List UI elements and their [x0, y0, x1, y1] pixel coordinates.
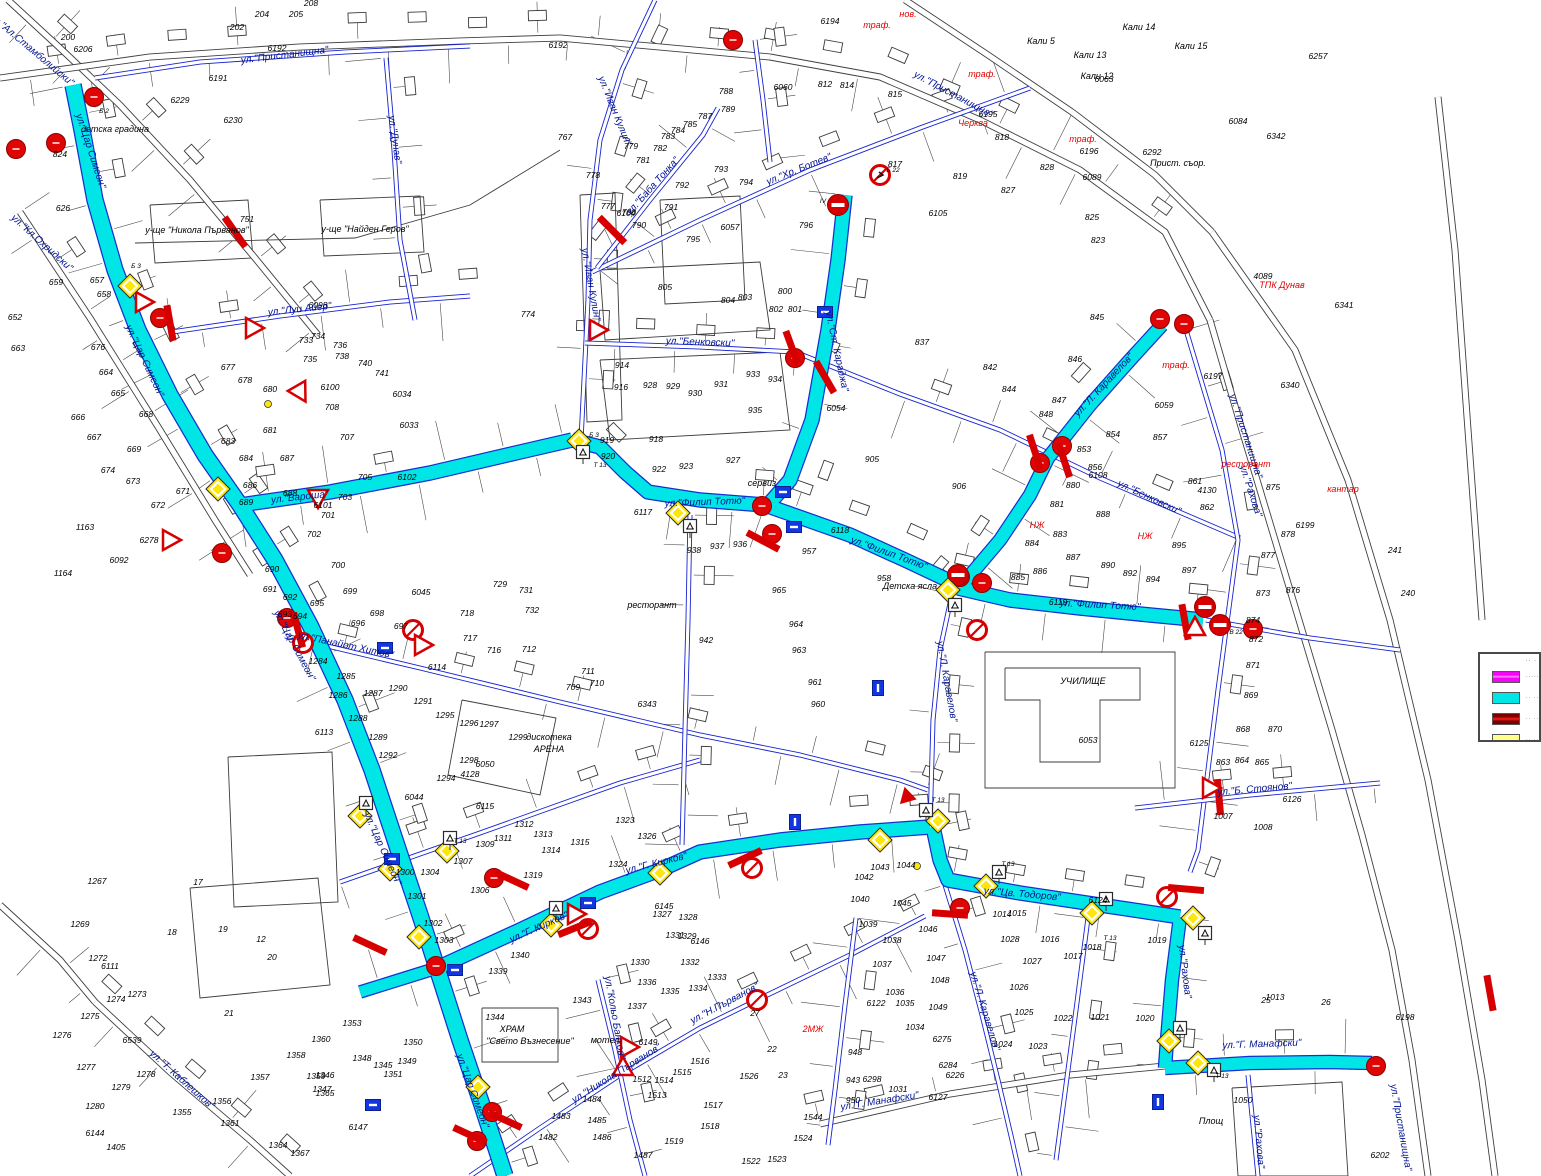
parcel-number: 200	[60, 32, 75, 42]
parcel-number: 1348	[353, 1053, 372, 1063]
parcel-number: 895	[1172, 540, 1186, 550]
parcel-number: 787	[698, 111, 712, 121]
legend-item-main-route-magenta: ·········	[1480, 666, 1539, 687]
parcel-number: 4130	[1198, 485, 1217, 495]
parcel-number: 708	[325, 402, 339, 412]
street-cyan[interactable]	[933, 827, 1180, 917]
parcel-number: 886	[1033, 566, 1047, 576]
micro-label: В 22	[1229, 629, 1243, 636]
parcel-number: 876	[1286, 585, 1300, 595]
parcel-number: 6126	[1283, 794, 1302, 804]
facility-label: ХРАМ	[499, 1024, 525, 1034]
parcel-number: 930	[688, 388, 702, 398]
parcel-number: 674	[101, 465, 115, 475]
parcel-number: 788	[719, 86, 733, 96]
parcel-number: 1336	[638, 977, 657, 987]
parcel-number: 922	[652, 464, 666, 474]
parcel-number: 887	[1066, 552, 1080, 562]
parcel-number: 686	[243, 480, 257, 490]
yield-sign-icon	[288, 381, 314, 407]
parcel-number: 877	[1261, 550, 1275, 560]
legend-label: ·· ····	[1526, 695, 1541, 701]
parking-sign-icon	[787, 522, 802, 533]
parcel-number: 1367	[291, 1148, 310, 1158]
parcel-number: 935	[748, 405, 762, 415]
parcel-number: 842	[983, 362, 997, 372]
parcel-number: 6113	[315, 727, 334, 737]
parcel-number: 1050	[1234, 1095, 1253, 1105]
parcel-number: 837	[915, 337, 929, 347]
parcel-number: 740	[358, 358, 372, 368]
parcel-number: 880	[1066, 480, 1080, 490]
parcel-number: 6199	[1296, 520, 1315, 530]
parcel-number: 696	[351, 618, 365, 628]
parcel-number: 729	[493, 579, 507, 589]
parcel-number: 1286	[329, 690, 348, 700]
parcel-number: 1035	[896, 998, 915, 1008]
parcel-number: 863	[1216, 757, 1230, 767]
parcel-number: 1049	[929, 1002, 948, 1012]
parcel-number: 812	[818, 79, 832, 89]
parcel-number: 204	[254, 9, 269, 19]
parcel-number: 697	[394, 621, 408, 631]
parcel-number: 1036	[886, 987, 905, 997]
facility-label: Кали 5	[1027, 36, 1056, 46]
parcel-number: 865	[1255, 757, 1269, 767]
parcel-number: 6226	[946, 1070, 965, 1080]
parcel-number: 1513	[648, 1090, 667, 1100]
facility-label: у-ще "Никола Първанов"	[144, 225, 249, 235]
parcel-number: 716	[487, 645, 501, 655]
parcel-number: 1278	[137, 1069, 156, 1079]
hydrant-icon	[213, 544, 232, 563]
parcel-number: 1335	[661, 986, 680, 996]
parcel-number: 1279	[112, 1082, 131, 1092]
parcel-number: 6101	[314, 500, 333, 510]
parcel-number: 6342	[1267, 131, 1286, 141]
parcel-number: 870	[1268, 724, 1282, 734]
facility-label: Детска ясла	[882, 581, 937, 591]
parcel-number: 6122	[867, 998, 886, 1008]
parcel-number: 12	[256, 934, 266, 944]
parcel-number: 1295	[436, 710, 455, 720]
legend-swatch	[1492, 734, 1520, 743]
poi-label-red: траф.	[1162, 360, 1189, 370]
parcel-number: 1304	[421, 867, 440, 877]
parcel-number: 1016	[1041, 934, 1060, 944]
parcel-number: 1025	[1015, 1007, 1034, 1017]
street-name-label: ул."Кл.Охридски"	[8, 212, 75, 274]
parcel-number: 6197	[1204, 371, 1223, 381]
micro-label: Т 13	[931, 797, 944, 804]
parcel-number: 6060	[774, 82, 793, 92]
parcel-number: 666	[71, 412, 85, 422]
parcel-number: 1019	[1148, 935, 1167, 945]
parcel-number: 800	[778, 286, 792, 296]
parcel-number: 943	[846, 1075, 860, 1085]
parcel-number: 707	[340, 432, 354, 442]
parcel-number: 948	[848, 1047, 862, 1057]
parcel-number: 1515	[673, 1067, 692, 1077]
no-stopping-sign-icon	[968, 621, 987, 640]
facility-label: Кали 15	[1175, 41, 1209, 51]
parcel-number: 1292	[379, 750, 398, 760]
parcel-number: 241	[1387, 545, 1402, 555]
parcel-number: 1350	[404, 1037, 423, 1047]
parcel-number: 683	[221, 436, 235, 446]
parcel-number: 1273	[128, 989, 147, 999]
parcel-number: 664	[99, 367, 113, 377]
parcel-number: 717	[463, 633, 477, 643]
parcel-number: 1365	[316, 1088, 335, 1098]
micro-label: Т 13	[1103, 935, 1116, 942]
parcel-number: 6124	[1089, 895, 1108, 905]
parcel-number: 1518	[701, 1121, 720, 1131]
parcel-number: 1296	[460, 718, 479, 728]
facility-label: Кали 12	[1081, 71, 1114, 81]
parcel-number: 6118	[831, 525, 850, 535]
parcel-number: 677	[221, 362, 235, 372]
parcel-number: 963	[792, 645, 806, 655]
parcel-number: 700	[331, 560, 345, 570]
parcel-number: 1047	[927, 953, 946, 963]
parcel-number: 802	[769, 304, 783, 314]
parcel-number: 1299	[509, 732, 528, 742]
parcel-number: 1482	[539, 1132, 558, 1142]
parcel-number: 888	[1096, 509, 1110, 519]
parcel-number: 778	[586, 170, 600, 180]
crossing-sign-icon	[577, 446, 590, 465]
parcel-number: 892	[1123, 568, 1137, 578]
parcel-number: 6125	[1190, 738, 1209, 748]
micro-label: Т 13	[1215, 1073, 1228, 1080]
parcel-number: 6092	[110, 555, 129, 565]
micro-label: IV	[820, 198, 827, 205]
micro-label: Т 13	[1001, 861, 1014, 868]
parcel-number: 1307	[454, 856, 473, 866]
parcel-number: 6045	[412, 587, 431, 597]
parcel-number: 25	[1260, 995, 1271, 1005]
facility-label: ресторант	[626, 600, 677, 610]
hydrant-icon	[724, 31, 743, 50]
parcel-number: 1277	[77, 1062, 96, 1072]
parcel-number: 1288	[349, 713, 368, 723]
parcel-number: 1311	[494, 833, 513, 843]
parcel-number: 1313	[534, 829, 553, 839]
parcel-number: 684	[239, 453, 253, 463]
road-closure-bar-icon	[352, 934, 388, 956]
parcel-number: 905	[865, 454, 879, 464]
parcel-number: 672	[151, 500, 165, 510]
parcel-number: 767	[558, 132, 572, 142]
parcel-number: 1018	[1083, 942, 1102, 952]
parcel-number: 734	[311, 331, 325, 341]
parcel-number: 6105	[929, 208, 948, 218]
parcel-number: 1291	[414, 696, 433, 706]
parcel-number: 6191	[209, 73, 228, 83]
parcel-number: 1523	[768, 1154, 787, 1164]
parcel-number: 1275	[81, 1011, 100, 1021]
parcel-number: 27	[749, 1008, 760, 1018]
parcel-number: 1315	[571, 837, 590, 847]
parcel-number: 6033	[400, 420, 419, 430]
parcel-number: 681	[263, 425, 277, 435]
parcel-number: 23	[777, 1070, 788, 1080]
hydrant-icon	[85, 88, 104, 107]
parcel-number: 701	[321, 510, 335, 520]
parcel-number: 1349	[398, 1056, 417, 1066]
parcel-number: 680	[263, 384, 277, 394]
parcel-number: 791	[664, 202, 678, 212]
parcel-number: 871	[1246, 660, 1260, 670]
parcel-number: 878	[1281, 529, 1295, 539]
parcel-number: 6108	[1089, 470, 1108, 480]
parcel-number: 1294	[437, 773, 456, 783]
parcel-number: 6084	[1229, 116, 1248, 126]
parcel-number: 929	[666, 381, 680, 391]
parcel-number: 1022	[1054, 1013, 1073, 1023]
legend-title: ·· ·	[1480, 654, 1539, 666]
poi-label-red: Черква	[958, 118, 988, 128]
hydrant-icon	[1367, 1057, 1386, 1076]
legend-item-main-route-yellow: ·· ····	[1480, 729, 1539, 742]
parcel-number: 845	[1090, 312, 1104, 322]
parcel-number: 914	[615, 360, 629, 370]
parcel-number: 659	[49, 277, 63, 287]
parcel-number: 1323	[616, 815, 635, 825]
parcel-number: 6127	[929, 1092, 948, 1102]
parcel-number: 1163	[76, 522, 95, 532]
parcel-number: 847	[1052, 395, 1066, 405]
parcel-number: 785	[683, 119, 697, 129]
parcel-number: 19	[218, 924, 228, 934]
parcel-number: 781	[636, 155, 650, 165]
parcel-number: 6044	[405, 792, 424, 802]
parcel-number: 1034	[906, 1022, 925, 1032]
parcel-number: 663	[11, 343, 25, 353]
parking-sign-icon	[776, 487, 791, 498]
micro-label: Б 3	[131, 263, 141, 270]
parcel-number: 1306	[471, 885, 490, 895]
poi-label-red: 2МЖ	[802, 1024, 825, 1034]
parcel-number: 1287	[364, 688, 383, 698]
parcel-number: 17	[193, 877, 203, 887]
parcel-number: 875	[1266, 482, 1280, 492]
parcel-number: 815	[888, 89, 902, 99]
parcel-number: 710	[590, 678, 604, 688]
parcel-number: 890	[1101, 560, 1115, 570]
parcel-number: 823	[1091, 235, 1105, 245]
crossing-sign-icon	[684, 520, 697, 539]
parcel-number: 906	[952, 481, 966, 491]
map-legend: ·· · ··········· ······ ······ ····	[1478, 652, 1541, 742]
parcel-number: 931	[714, 379, 728, 389]
parcel-number: 6194	[821, 16, 840, 26]
parcel-number: 6145	[655, 901, 674, 911]
parcel-number: 883	[1053, 529, 1067, 539]
parcel-number: 1486	[593, 1132, 612, 1142]
parcel-number: 814	[840, 80, 854, 90]
hydrant-icon	[7, 140, 26, 159]
parcel-number: 1289	[369, 732, 388, 742]
parcel-number: 732	[525, 605, 539, 615]
parcel-number: 937	[710, 541, 724, 551]
parcel-number: 874	[1246, 615, 1260, 625]
parcel-number: 6298	[863, 1074, 882, 1084]
parcel-number: 853	[1077, 444, 1091, 454]
parcel-number: 1351	[384, 1069, 403, 1079]
parcel-number: 936	[733, 539, 747, 549]
parcel-number: 741	[375, 368, 389, 378]
parcel-number: 884	[1025, 538, 1039, 548]
parcel-number: 1038	[883, 935, 902, 945]
parcel-number: 690	[265, 564, 279, 574]
parcel-number: 1361	[221, 1118, 240, 1128]
parcel-number: 667	[87, 432, 101, 442]
parcel-number: 862	[1200, 502, 1214, 512]
parcel-number: 657	[90, 275, 104, 285]
parcel-number: 828	[1040, 162, 1054, 172]
parcel-number: 918	[649, 434, 663, 444]
parcel-number: 735	[303, 354, 317, 364]
parcel-number: 1355	[173, 1107, 192, 1117]
parcel-number: 1285	[337, 671, 356, 681]
parcel-number: 1164	[54, 568, 73, 578]
crossing-sign-icon	[949, 599, 962, 618]
parcel-number: 804	[721, 295, 735, 305]
parcel-number: 718	[460, 608, 474, 618]
street-name-label: ул."Филип Тотю"	[848, 534, 929, 572]
parcel-number: 6050	[476, 759, 495, 769]
parcel-number: 1524	[794, 1133, 813, 1143]
parcel-number: 689	[239, 497, 253, 507]
parcel-number: 916	[614, 382, 628, 392]
parcel-number: 698	[370, 608, 384, 618]
parcel-number: 6111	[101, 961, 119, 971]
parcel-number: 6059	[1155, 400, 1174, 410]
hydrant-icon	[973, 574, 992, 593]
parcel-number: 18	[167, 927, 177, 937]
parcel-number: 6343	[638, 699, 657, 709]
parcel-number: 1360	[312, 1034, 331, 1044]
info-sign-icon	[873, 681, 884, 696]
parcel-number: 872	[1249, 634, 1263, 644]
street-name-label: ул."Пристанищна"	[1387, 1082, 1413, 1172]
parcel-number: 818	[995, 132, 1009, 142]
parcel-number: 825	[1085, 212, 1099, 222]
micro-label: Б 22	[886, 167, 900, 174]
parcel-number: 1015	[1008, 908, 1027, 918]
legend-label: ·········	[1526, 674, 1541, 680]
parcel-number: 805	[658, 282, 672, 292]
parcel-number: 699	[343, 586, 357, 596]
facility-label: Площ	[1199, 1116, 1224, 1126]
parcel-number: 6100	[321, 382, 340, 392]
parcel-number: 626	[56, 203, 70, 213]
parcel-number: 1405	[107, 1142, 126, 1152]
parking-sign-icon	[366, 1100, 381, 1111]
yield-sign-icon	[163, 530, 181, 550]
marker-dot-icon	[265, 401, 272, 408]
parcel-number: 1039	[859, 919, 878, 929]
parcel-number: 1269	[71, 919, 90, 929]
parcel-number: 1487	[634, 1150, 653, 1160]
parcel-number: 854	[1106, 429, 1120, 439]
legend-swatch	[1492, 713, 1520, 725]
parcel-number: 965	[772, 585, 786, 595]
parcel-number: 796	[799, 220, 813, 230]
parcel-number: 803	[738, 292, 752, 302]
parcel-number: 1514	[655, 1075, 674, 1085]
info-sign-icon	[1153, 1095, 1164, 1110]
street-cyan[interactable]	[360, 968, 437, 992]
parcel-number: 1274	[107, 994, 126, 1004]
parcel-number: 897	[1182, 565, 1196, 575]
street-name-label: ул."Т. Каблешков"	[146, 1047, 217, 1112]
parcel-number: 658	[97, 289, 111, 299]
parcel-number: 801	[788, 304, 802, 314]
facility-label: сервиз	[748, 478, 776, 488]
parcel-number: 6202	[1371, 1150, 1390, 1160]
facility-label: "Свето Възнесение"	[486, 1036, 574, 1046]
parcel-number: 687	[280, 453, 294, 463]
parcel-number: 705	[358, 472, 372, 482]
parcel-number: 1343	[573, 995, 592, 1005]
parcel-number: 1353	[343, 1018, 362, 1028]
parcel-number: 6144	[86, 1128, 105, 1138]
parcel-number: 6257	[1309, 51, 1328, 61]
parcel-number: 6102	[398, 472, 417, 482]
parcel-number: 1309	[476, 839, 495, 849]
parcel-number: 712	[522, 644, 536, 654]
parcel-number: 6115	[476, 801, 495, 811]
poi-label-red: ТПК Дунав	[1259, 280, 1305, 290]
parcel-number: 873	[1256, 588, 1270, 598]
hydrant-icon	[1175, 315, 1194, 334]
legend-label: ·· ····	[1526, 737, 1541, 743]
parcel-number: 1020	[1136, 1013, 1155, 1023]
parcel-number: 1037	[873, 959, 892, 969]
micro-label: Б 2	[99, 108, 109, 115]
city-cadastral-map[interactable]: 2002042052082026206619261926191622962307…	[0, 0, 1541, 1176]
parcel-number: 665	[111, 388, 125, 398]
parcel-number: 6117	[634, 507, 653, 517]
parcel-number: 1334	[689, 983, 708, 993]
legend-item-main-route-cyan: ·· ····	[1480, 687, 1539, 708]
poi-label-red: НЖ	[1030, 520, 1045, 530]
no-entry-sign-icon	[1195, 597, 1216, 618]
yield-sign-icon	[136, 292, 154, 312]
parcel-number: 928	[643, 380, 657, 390]
parcel-number: 1043	[871, 862, 890, 872]
facility-label: детска градина	[81, 124, 149, 134]
parcel-number: 202	[229, 22, 244, 32]
road-closure-bar-icon	[1483, 975, 1496, 1012]
street-name-label: ул."Иван Кулин"	[578, 246, 602, 322]
hydrant-icon	[753, 497, 772, 516]
hydrant-icon	[1151, 310, 1170, 329]
parcel-number: 790	[632, 220, 646, 230]
parcel-number: 652	[8, 312, 22, 322]
parcel-number: 20	[266, 952, 277, 962]
parcel-number: 205	[288, 9, 303, 19]
parcel-number: 792	[675, 180, 689, 190]
parcel-number: 694	[293, 611, 307, 621]
parcel-number: 6114	[428, 662, 447, 672]
map-stage: 2002042052082026206619261926191622962307…	[0, 0, 1541, 1176]
parcel-number: 6054	[827, 403, 846, 413]
parcel-number: 703	[338, 492, 352, 502]
